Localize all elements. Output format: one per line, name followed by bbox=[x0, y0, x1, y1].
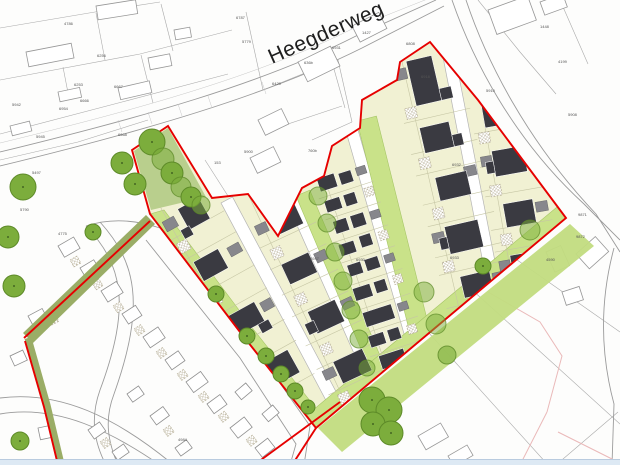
tree bbox=[334, 272, 352, 290]
parcel-number-label: 5910 bbox=[486, 88, 496, 93]
parcel-number-label: 6666 bbox=[80, 98, 90, 103]
tree-center-dot bbox=[388, 409, 390, 411]
parcel-number-label: 760b bbox=[308, 148, 318, 153]
parcel-number-label: 6256 bbox=[97, 53, 107, 58]
tree-center-dot bbox=[13, 285, 15, 287]
parcel-number-label: 6668 bbox=[118, 132, 128, 137]
parcel-number-label: 153 bbox=[214, 160, 221, 165]
site-plan-map: 4786625662535942695459456666666766686787… bbox=[0, 0, 620, 465]
tree bbox=[350, 330, 368, 348]
parcel-number-label: 6808 bbox=[406, 41, 416, 46]
tree-center-dot bbox=[22, 186, 24, 188]
parcel-number-label: 4786 bbox=[64, 21, 74, 26]
parcel-number-label: 4590 bbox=[546, 257, 556, 262]
parcel-number-label: 5945 bbox=[36, 134, 46, 139]
parcel-number-label: 5790 bbox=[20, 207, 30, 212]
tree-center-dot bbox=[134, 183, 136, 185]
parcel-number-label: 6253 bbox=[74, 82, 84, 87]
parking-pad bbox=[478, 131, 491, 144]
tree-center-dot bbox=[215, 293, 217, 295]
tree-center-dot bbox=[372, 423, 374, 425]
new-building bbox=[485, 161, 495, 174]
tree-center-dot bbox=[246, 335, 248, 337]
parcel-number-label: 9871 bbox=[578, 212, 588, 217]
tree-center-dot bbox=[121, 162, 123, 164]
parcel-number-label: 4199 bbox=[558, 59, 568, 64]
parcel-number-label: 636b bbox=[304, 60, 314, 65]
tree-center-dot bbox=[151, 141, 153, 143]
parcel-number-label: 6933 bbox=[450, 255, 460, 260]
tree bbox=[426, 314, 446, 334]
new-building bbox=[439, 86, 453, 100]
parking-pad bbox=[489, 184, 502, 197]
tree-center-dot bbox=[371, 399, 373, 401]
parcel-number-label: 5497 bbox=[32, 170, 42, 175]
parcel-number-label: 6918 bbox=[421, 74, 431, 79]
parcel-number-label: 1448 bbox=[540, 24, 550, 29]
parcel-number-label: 4775 bbox=[58, 231, 68, 236]
tree bbox=[414, 282, 434, 302]
parcel-number-label: 5779 bbox=[242, 39, 252, 44]
parcel-number-label: 6932 bbox=[452, 162, 462, 167]
tree bbox=[326, 243, 344, 261]
tree-center-dot bbox=[294, 390, 296, 392]
tree-center-dot bbox=[265, 355, 267, 357]
parcel-number-label: 5900 bbox=[244, 149, 254, 154]
parcel-number-label: 6787 bbox=[236, 15, 246, 20]
parcel-number-label: 6429 bbox=[272, 81, 282, 86]
tree bbox=[438, 346, 456, 364]
tree bbox=[192, 196, 210, 214]
parcel-number-label: 6954 bbox=[59, 106, 69, 111]
tree-center-dot bbox=[171, 172, 173, 174]
parcel-number-label: 5908 bbox=[568, 112, 578, 117]
tree bbox=[359, 360, 375, 376]
parcel-number-label: 6930 bbox=[356, 257, 366, 262]
tree bbox=[318, 214, 336, 232]
parcel-number-label: 6667 bbox=[114, 84, 124, 89]
tree bbox=[520, 220, 540, 240]
tree-center-dot bbox=[390, 432, 392, 434]
outbuilding bbox=[535, 200, 549, 212]
parcel-number-label: 6947 bbox=[310, 256, 320, 261]
site-plan-svg: 4786625662535942695459456666666766686787… bbox=[0, 0, 620, 465]
tree-center-dot bbox=[19, 440, 21, 442]
parcel-number-label: 5942 bbox=[12, 102, 22, 107]
tree bbox=[0, 226, 19, 248]
tree-center-dot bbox=[92, 231, 94, 233]
tree-center-dot bbox=[482, 265, 484, 267]
parcel-number-label: 1427 bbox=[362, 30, 372, 35]
tree bbox=[309, 187, 327, 205]
parcel-number-label: 6931 bbox=[332, 45, 342, 50]
tree-center-dot bbox=[190, 196, 192, 198]
tree-center-dot bbox=[307, 406, 309, 408]
tree bbox=[342, 301, 360, 319]
tree-center-dot bbox=[280, 373, 282, 375]
tree-center-dot bbox=[7, 236, 9, 238]
window-edge-bar bbox=[0, 460, 620, 465]
parking-pad bbox=[500, 233, 513, 246]
parcel-number-label: 4984 bbox=[178, 437, 188, 442]
parcel-number-label: 9872 bbox=[576, 234, 586, 239]
